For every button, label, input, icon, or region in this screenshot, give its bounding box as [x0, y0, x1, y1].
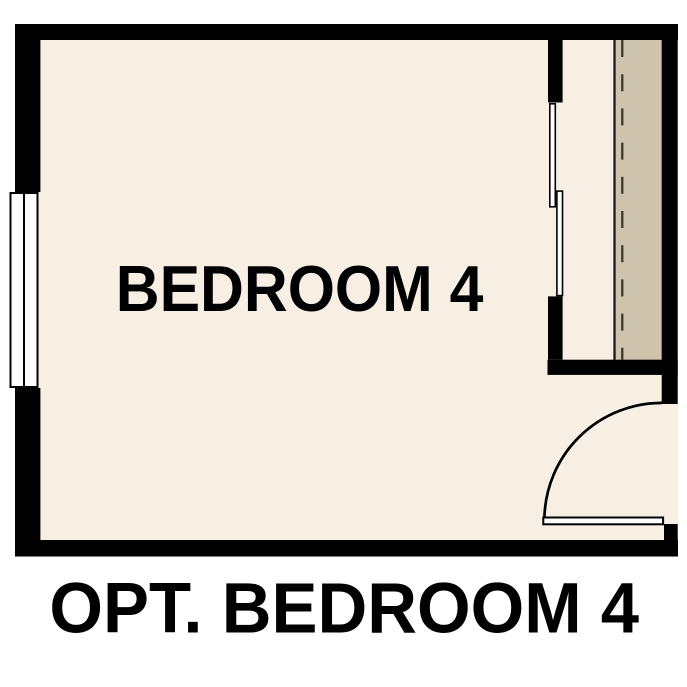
svg-text:BEDROOM 4: BEDROOM 4 [116, 253, 484, 325]
svg-text:OPT. BEDROOM 4: OPT. BEDROOM 4 [49, 567, 639, 647]
